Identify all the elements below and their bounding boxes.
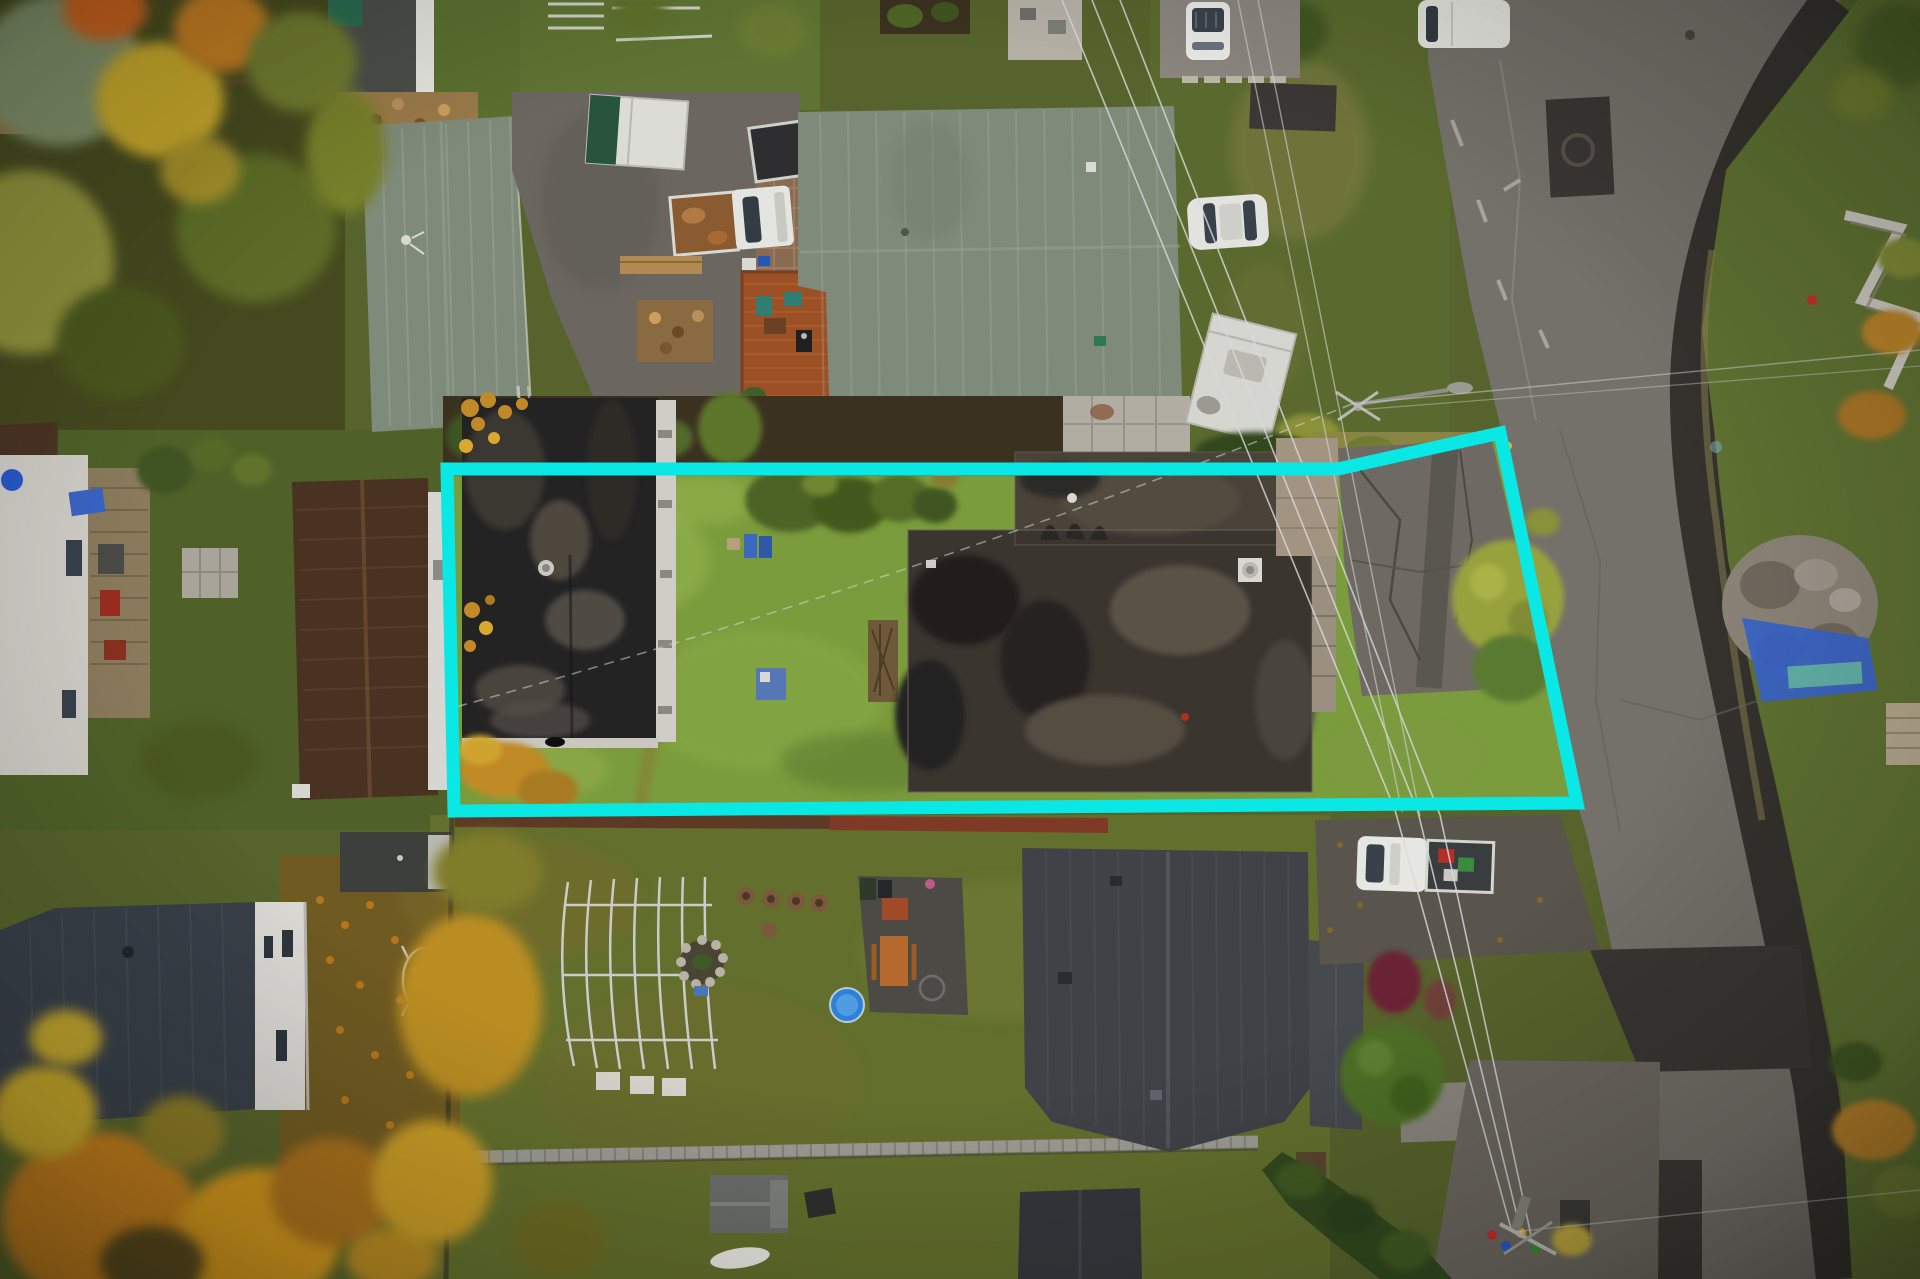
vignette [0, 0, 1920, 1279]
aerial-photo [0, 0, 1920, 1279]
aerial-scene [0, 0, 1920, 1279]
